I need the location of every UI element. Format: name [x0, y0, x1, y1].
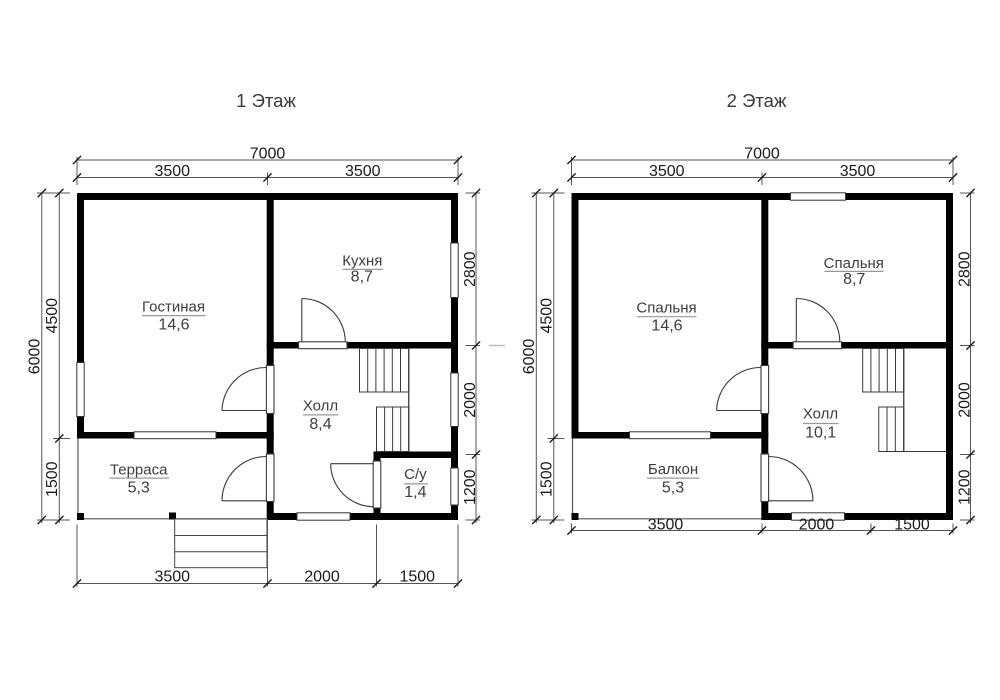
svg-text:2000: 2000 [304, 569, 340, 586]
svg-text:Балкон: Балкон [648, 461, 698, 478]
svg-text:Холл: Холл [303, 397, 338, 414]
svg-text:1 Этаж: 1 Этаж [236, 90, 296, 111]
svg-text:10,1: 10,1 [805, 425, 836, 442]
svg-text:8,7: 8,7 [843, 271, 865, 288]
svg-text:1,4: 1,4 [404, 484, 426, 501]
svg-text:6000: 6000 [27, 339, 44, 375]
svg-text:С/у: С/у [404, 466, 427, 483]
svg-text:2800: 2800 [462, 251, 479, 287]
svg-text:1500: 1500 [539, 461, 556, 497]
svg-text:7000: 7000 [744, 145, 780, 162]
svg-text:2000: 2000 [799, 517, 835, 534]
svg-text:Терраса: Терраса [110, 462, 168, 479]
svg-text:4500: 4500 [44, 298, 61, 334]
svg-text:1500: 1500 [894, 517, 930, 534]
svg-text:2000: 2000 [462, 382, 479, 418]
svg-text:2800: 2800 [956, 251, 973, 287]
svg-text:8,7: 8,7 [351, 269, 373, 286]
svg-text:4500: 4500 [539, 298, 556, 334]
svg-text:3500: 3500 [154, 569, 190, 586]
svg-text:1200: 1200 [462, 469, 479, 505]
svg-text:3500: 3500 [154, 163, 190, 180]
svg-text:Спальня: Спальня [824, 255, 884, 272]
svg-text:2000: 2000 [956, 382, 973, 418]
svg-text:7000: 7000 [250, 145, 286, 162]
svg-text:Спальня: Спальня [636, 300, 696, 317]
svg-text:1500: 1500 [399, 569, 435, 586]
svg-text:14,6: 14,6 [651, 318, 682, 335]
svg-text:1500: 1500 [44, 461, 61, 497]
svg-text:3500: 3500 [649, 163, 685, 180]
svg-text:5,3: 5,3 [128, 480, 150, 497]
svg-text:Холл: Холл [803, 405, 838, 422]
svg-text:6000: 6000 [521, 339, 538, 375]
svg-text:3500: 3500 [345, 163, 381, 180]
svg-text:8,4: 8,4 [309, 416, 331, 433]
svg-text:14,6: 14,6 [158, 317, 189, 334]
svg-text:3500: 3500 [840, 163, 876, 180]
svg-text:Кухня: Кухня [342, 253, 382, 270]
svg-text:3500: 3500 [648, 517, 684, 534]
svg-text:Гостиная: Гостиная [142, 299, 205, 316]
svg-text:1200: 1200 [956, 469, 973, 505]
svg-text:5,3: 5,3 [662, 480, 684, 497]
svg-text:2 Этаж: 2 Этаж [727, 90, 787, 111]
